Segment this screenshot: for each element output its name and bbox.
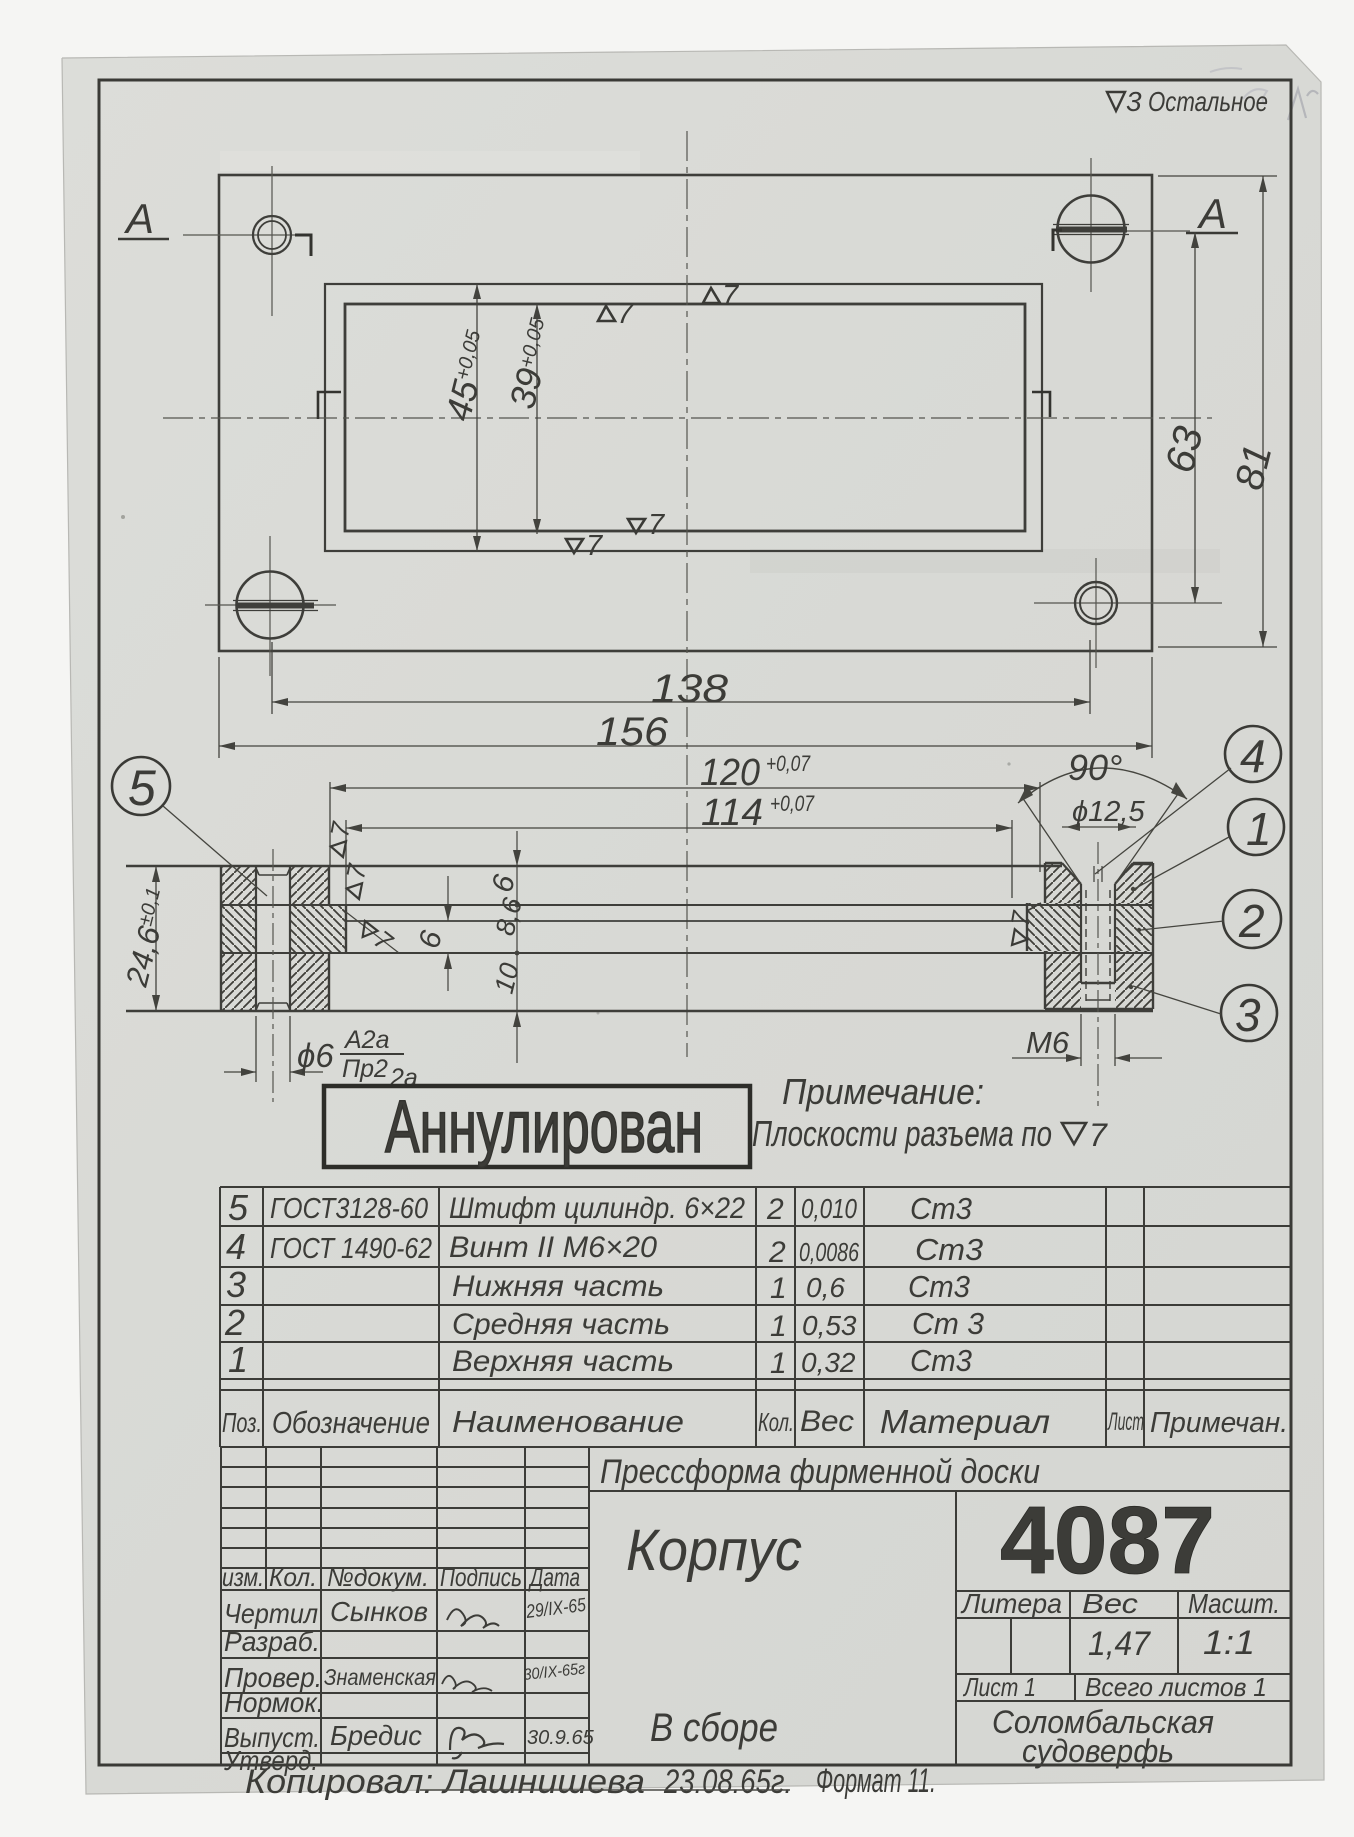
svg-text:Кол.: Кол. <box>269 1562 317 1592</box>
svg-text:изм.: изм. <box>222 1562 264 1592</box>
svg-text:Кол.: Кол. <box>758 1407 794 1437</box>
svg-text:4: 4 <box>226 1226 246 1267</box>
svg-text:7: 7 <box>586 530 604 562</box>
svg-text:Аннулирован: Аннулирован <box>385 1085 703 1168</box>
svg-text:Лист 1: Лист 1 <box>962 1672 1036 1702</box>
svg-text:Примечан.: Примечан. <box>1150 1407 1288 1439</box>
svg-text:Чертил: Чертил <box>224 1598 318 1629</box>
svg-text:7: 7 <box>617 298 635 330</box>
svg-text:1: 1 <box>770 1347 787 1380</box>
svg-text:2: 2 <box>1238 895 1265 947</box>
svg-text:2: 2 <box>224 1302 245 1343</box>
svg-text:№докум.: №докум. <box>327 1562 429 1592</box>
svg-text:судоверфь: судоверфь <box>1022 1733 1174 1769</box>
svg-text:ϕ12,5: ϕ12,5 <box>1072 796 1145 828</box>
svg-text:5: 5 <box>128 760 156 816</box>
svg-text:7: 7 <box>722 280 740 312</box>
svg-text:Сынков: Сынков <box>330 1596 428 1627</box>
svg-text:7: 7 <box>648 509 666 541</box>
svg-text:Средняя часть: Средняя часть <box>452 1308 670 1341</box>
svg-text:Вес: Вес <box>1082 1588 1138 1619</box>
svg-text:ГОСТ3128-60: ГОСТ3128-60 <box>270 1193 428 1225</box>
svg-text:Плоскости разъема по: Плоскости разъема по <box>752 1113 1052 1154</box>
svg-text:Знаменская: Знаменская <box>324 1664 436 1690</box>
svg-text:Штифт цилиндр. 6×22: Штифт цилиндр. 6×22 <box>449 1192 745 1225</box>
svg-text:3: 3 <box>1126 86 1142 117</box>
svg-text:ϕ6: ϕ6 <box>297 1037 334 1074</box>
svg-text:0,0086: 0,0086 <box>799 1237 859 1267</box>
svg-text:А: А <box>1196 190 1227 237</box>
svg-text:ГОСТ 1490-62: ГОСТ 1490-62 <box>270 1233 432 1265</box>
svg-text:Литера: Литера <box>960 1588 1062 1619</box>
svg-text:1: 1 <box>228 1339 248 1380</box>
svg-text:Наименование: Наименование <box>452 1404 684 1439</box>
svg-text:Дата: Дата <box>528 1562 580 1592</box>
svg-text:114: 114 <box>701 792 763 834</box>
svg-text:Масшт.: Масшт. <box>1188 1588 1280 1619</box>
svg-text:4087: 4087 <box>1000 1487 1215 1594</box>
svg-text:Вес: Вес <box>800 1405 854 1438</box>
svg-text:+0,07: +0,07 <box>766 751 811 776</box>
svg-text:0,53: 0,53 <box>802 1310 857 1341</box>
svg-text:Ст3: Ст3 <box>915 1232 983 1267</box>
svg-text:Винт II М6×20: Винт II М6×20 <box>449 1231 657 1264</box>
svg-text:Обозначение: Обозначение <box>272 1405 430 1440</box>
svg-text:+0,07: +0,07 <box>770 791 815 816</box>
svg-text:3: 3 <box>1235 989 1261 1041</box>
svg-text:0,32: 0,32 <box>801 1347 856 1378</box>
svg-text:Ст3: Ст3 <box>908 1269 970 1304</box>
svg-text:Пр2: Пр2 <box>342 1055 388 1083</box>
svg-text:А2а: А2а <box>343 1026 390 1054</box>
svg-text:156: 156 <box>596 710 669 754</box>
svg-text:0,6: 0,6 <box>806 1272 845 1303</box>
svg-text:Остальное: Остальное <box>1148 86 1268 117</box>
svg-text:7: 7 <box>1089 1117 1108 1153</box>
svg-text:1:1: 1:1 <box>1203 1624 1255 1662</box>
svg-text:Нижняя часть: Нижняя часть <box>452 1270 664 1303</box>
svg-text:В сборе: В сборе <box>650 1706 778 1750</box>
svg-text:138: 138 <box>651 667 729 711</box>
svg-text:Поз.: Поз. <box>222 1407 262 1438</box>
svg-text:Ст3: Ст3 <box>910 1343 972 1378</box>
svg-text:Примечание:: Примечание: <box>782 1071 984 1112</box>
svg-text:Разраб.: Разраб. <box>224 1626 320 1657</box>
svg-text:90°: 90° <box>1068 747 1122 788</box>
svg-text:5: 5 <box>228 1187 249 1228</box>
svg-text:3: 3 <box>226 1264 246 1305</box>
svg-text:1: 1 <box>770 1272 787 1305</box>
svg-text:Всего листов 1: Всего листов 1 <box>1085 1672 1267 1702</box>
svg-text:1: 1 <box>770 1310 787 1343</box>
svg-text:Корпус: Корпус <box>626 1518 802 1583</box>
svg-text:4: 4 <box>1240 730 1266 782</box>
svg-text:120: 120 <box>700 752 760 794</box>
svg-text:Копировал: Лашнишева: Копировал: Лашнишева <box>245 1763 645 1801</box>
svg-text:Ст 3: Ст 3 <box>912 1306 984 1341</box>
svg-text:23.08.65г.: 23.08.65г. <box>663 1763 792 1801</box>
svg-text:0,010: 0,010 <box>801 1193 857 1224</box>
svg-text:1,47: 1,47 <box>1088 1625 1151 1663</box>
svg-text:Ст3: Ст3 <box>910 1191 972 1226</box>
svg-text:2: 2 <box>766 1193 784 1226</box>
svg-text:Нормок.: Нормок. <box>224 1687 324 1718</box>
svg-text:Прессформа фирменной доски: Прессформа фирменной доски <box>600 1453 1040 1491</box>
svg-text:Подпись: Подпись <box>440 1562 522 1592</box>
svg-text:Материал: Материал <box>880 1403 1050 1440</box>
svg-text:Формат 11.: Формат 11. <box>816 1762 936 1800</box>
svg-text:М6: М6 <box>1026 1025 1070 1060</box>
svg-text:2: 2 <box>768 1236 786 1269</box>
svg-text:А: А <box>123 195 154 242</box>
svg-text:Бредис: Бредис <box>330 1720 422 1751</box>
svg-text:30.9.65: 30.9.65 <box>527 1727 595 1749</box>
svg-text:Лист: Лист <box>1107 1408 1144 1436</box>
svg-text:Верхняя часть: Верхняя часть <box>452 1345 674 1378</box>
svg-text:1: 1 <box>1246 803 1272 855</box>
